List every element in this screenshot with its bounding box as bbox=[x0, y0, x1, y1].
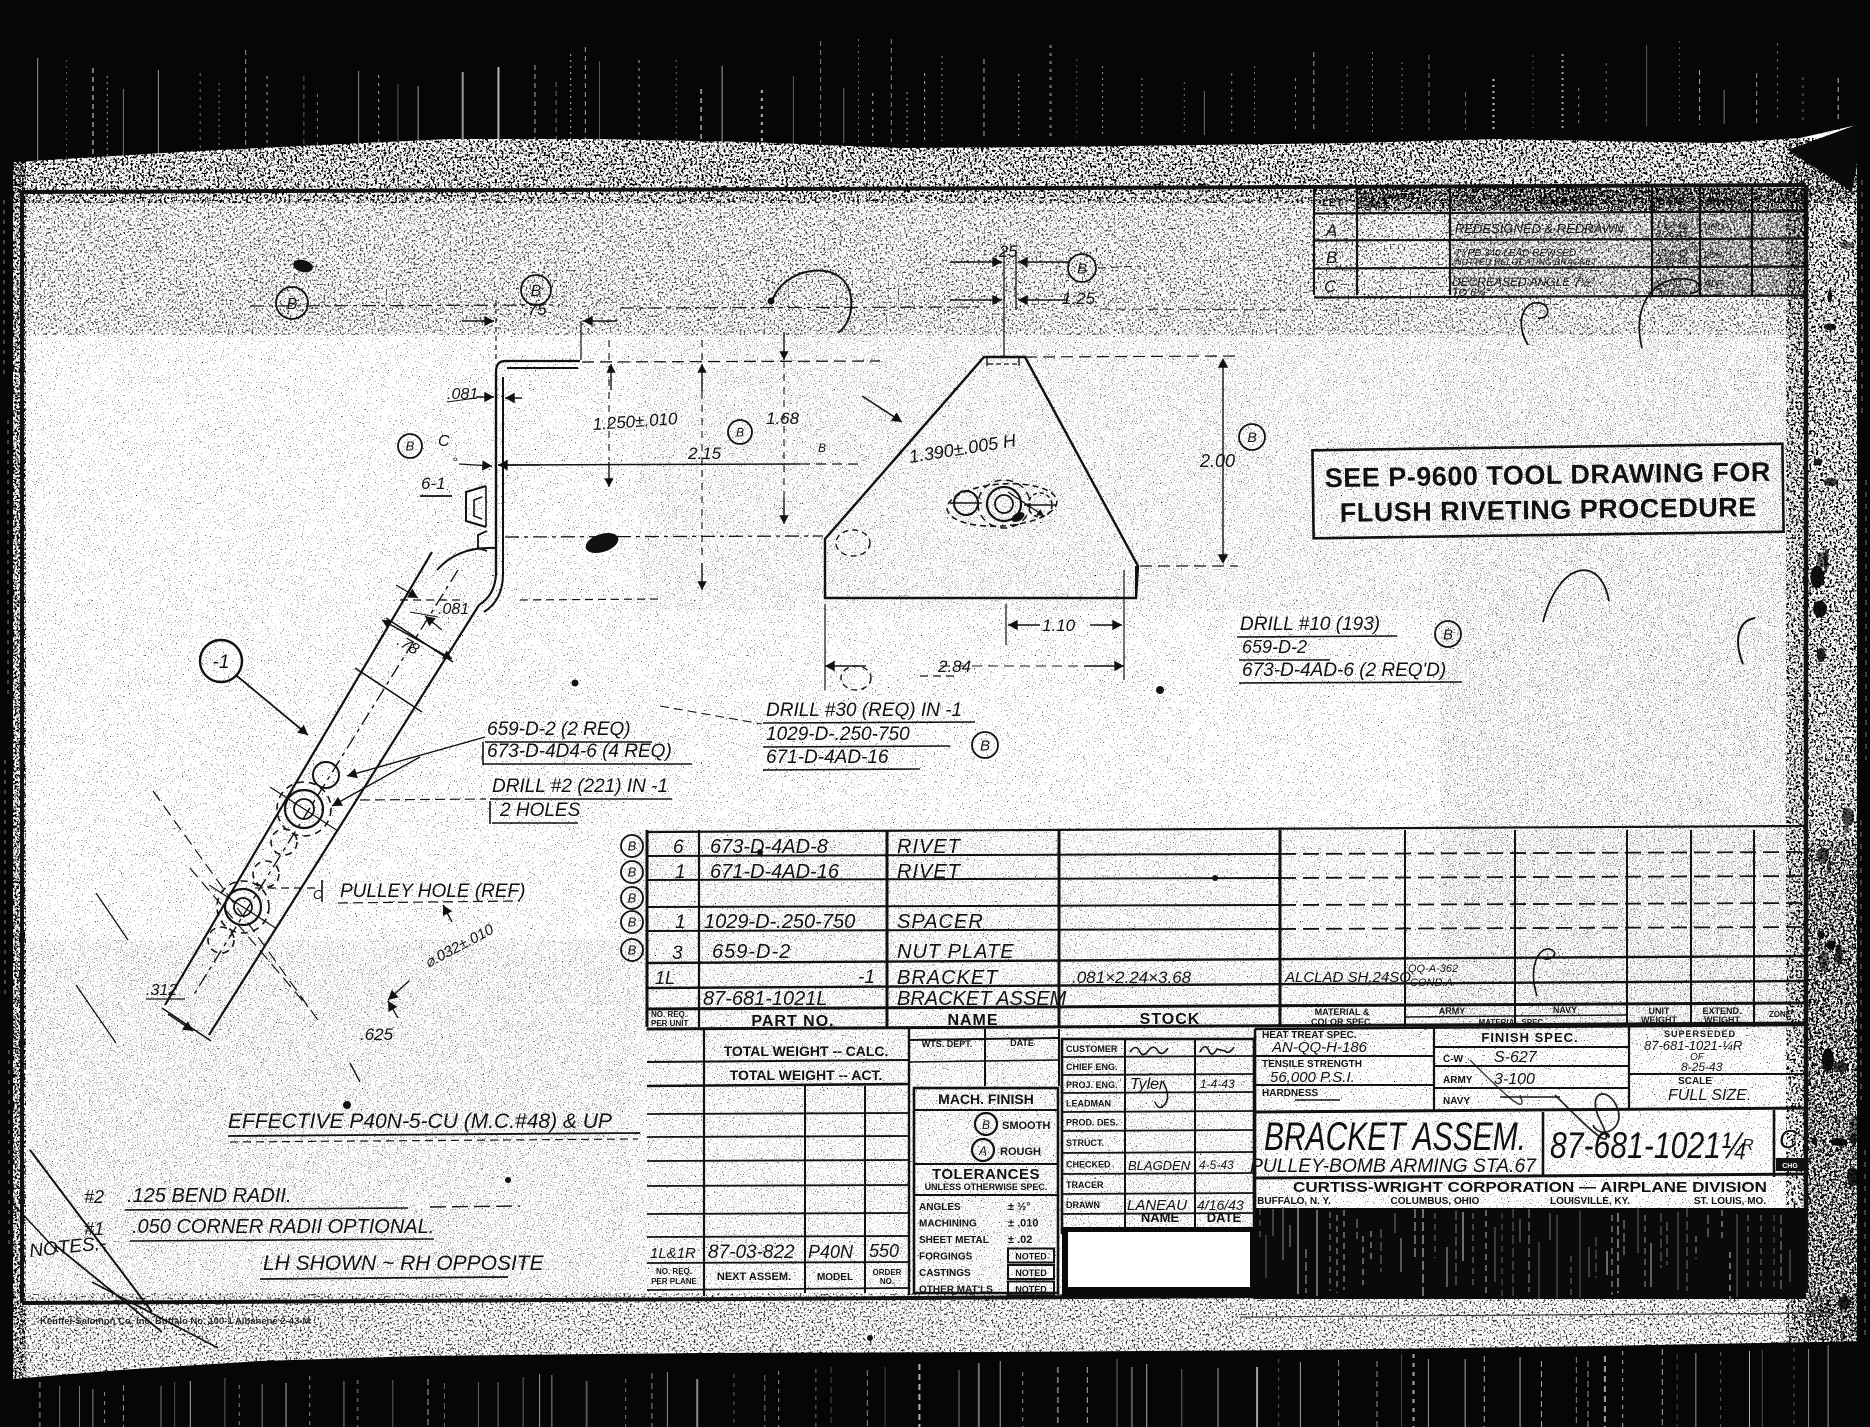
svg-text:B: B bbox=[1326, 248, 1337, 267]
svg-text:WTS. DEPT.: WTS. DEPT. bbox=[922, 1039, 973, 1049]
svg-text:.125 BEND RADII.: .125 BEND RADII. bbox=[127, 1185, 292, 1207]
svg-text:673-D-4AD-8: 673-D-4AD-8 bbox=[710, 836, 828, 858]
svg-text:NEXT ASSEM.: NEXT ASSEM. bbox=[717, 1271, 791, 1283]
svg-text:MACHINING: MACHINING bbox=[919, 1219, 977, 1230]
svg-text:COLOR SPEC.: COLOR SPEC. bbox=[1311, 1017, 1373, 1027]
svg-text:LEADMAN: LEADMAN bbox=[1066, 1099, 1111, 1109]
svg-text:CURTISS-WRIGHT CORPORATION —: CURTISS-WRIGHT CORPORATION — AIRPLANE DI… bbox=[1293, 1179, 1767, 1196]
svg-text:1-4-43: 1-4-43 bbox=[1200, 1077, 1235, 1091]
svg-text:B: B bbox=[1077, 260, 1087, 277]
svg-text:OTHER MAT'LS: OTHER MAT'LS bbox=[919, 1285, 993, 1296]
svg-text:NUT PLATE: NUT PLATE bbox=[897, 941, 1015, 963]
svg-text:BUFFALO, N. Y.: BUFFALO, N. Y. bbox=[1257, 1196, 1331, 1207]
svg-text:ANGLES: ANGLES bbox=[919, 1202, 961, 1213]
svg-text:NOTED: NOTED bbox=[1015, 1252, 1047, 1262]
svg-text:87-681-1021¼: 87-681-1021¼ bbox=[1550, 1125, 1746, 1166]
svg-text:NO. REQ.: NO. REQ. bbox=[651, 1010, 687, 1019]
svg-text:C: C bbox=[1779, 1124, 1798, 1154]
svg-text:CUSTOMER: CUSTOMER bbox=[1066, 1044, 1118, 1054]
svg-text:673-D-4AD-6 (2 REQ'D): 673-D-4AD-6 (2 REQ'D) bbox=[1242, 660, 1446, 681]
svg-text:TOLERANCES: TOLERANCES bbox=[932, 1166, 1040, 1183]
svg-text:R: R bbox=[1742, 1137, 1754, 1154]
svg-text:2.00: 2.00 bbox=[1199, 451, 1235, 471]
svg-text:LANEAU: LANEAU bbox=[1127, 1197, 1187, 1214]
svg-text:3: 3 bbox=[672, 943, 683, 964]
svg-text:± ½°: ± ½° bbox=[1008, 1201, 1031, 1213]
svg-text:C: C bbox=[313, 887, 323, 902]
svg-text:1.10: 1.10 bbox=[1042, 616, 1076, 635]
svg-text:NOTED: NOTED bbox=[1015, 1285, 1047, 1295]
svg-text:TOTAL WEIGHT -- CALC.: TOTAL WEIGHT -- CALC. bbox=[724, 1043, 889, 1059]
svg-text:87-681-1021L: 87-681-1021L bbox=[703, 988, 828, 1010]
svg-text:B: B bbox=[736, 425, 744, 439]
svg-text:CHECKED: CHECKED bbox=[1066, 1160, 1111, 1170]
svg-text:FLUSH RIVETING PROCEDURE: FLUSH RIVETING PROCEDURE bbox=[1340, 492, 1757, 528]
svg-text:STOCK: STOCK bbox=[1140, 1011, 1201, 1028]
svg-text:RIVET: RIVET bbox=[897, 861, 962, 883]
svg-text:± .02: ± .02 bbox=[1008, 1234, 1032, 1246]
svg-text:S-627: S-627 bbox=[1494, 1049, 1538, 1066]
svg-text:1.25: 1.25 bbox=[1062, 289, 1096, 308]
svg-text:Tyler: Tyler bbox=[1130, 1076, 1165, 1093]
svg-text:BRACKET ASSEM: BRACKET ASSEM bbox=[897, 988, 1067, 1010]
svg-text:NO. REQ.: NO. REQ. bbox=[656, 1267, 692, 1276]
svg-text:#2: #2 bbox=[84, 1187, 104, 1207]
svg-text:B: B bbox=[531, 283, 542, 300]
svg-text:6-1: 6-1 bbox=[421, 474, 446, 493]
svg-text:B: B bbox=[982, 1118, 990, 1132]
svg-text:C-W: C-W bbox=[1443, 1054, 1464, 1065]
svg-text:DRILL #30 (REQ) IN -1: DRILL #30 (REQ) IN -1 bbox=[766, 700, 962, 721]
svg-text:DRILL #10 (193): DRILL #10 (193) bbox=[1240, 614, 1380, 635]
svg-text:ARMY: ARMY bbox=[1439, 1006, 1466, 1016]
svg-text:659-D-2: 659-D-2 bbox=[1242, 637, 1307, 657]
svg-text:FINISH SPEC.: FINISH SPEC. bbox=[1481, 1030, 1578, 1045]
svg-text:STRUCT.: STRUCT. bbox=[1066, 1138, 1104, 1148]
svg-text:671-D-4AD-16: 671-D-4AD-16 bbox=[710, 861, 840, 883]
svg-text:B: B bbox=[628, 839, 637, 854]
svg-text:8-25-43: 8-25-43 bbox=[1681, 1060, 1723, 1074]
svg-text:673-D-4D4-6 (4 REQ): 673-D-4D4-6 (4 REQ) bbox=[487, 741, 672, 762]
svg-text:P40N: P40N bbox=[808, 1242, 854, 1262]
svg-text:MODEL: MODEL bbox=[817, 1272, 853, 1283]
svg-text:B: B bbox=[628, 865, 637, 880]
svg-text:ORDER: ORDER bbox=[873, 1268, 902, 1277]
svg-text:°: ° bbox=[452, 454, 458, 470]
svg-text:CASTINGS: CASTINGS bbox=[919, 1268, 971, 1279]
svg-text:DRILL #2 (221) IN -1: DRILL #2 (221) IN -1 bbox=[492, 776, 668, 797]
svg-text:4/16/43: 4/16/43 bbox=[1197, 1197, 1244, 1213]
svg-text:ALCLAD SH.24SO: ALCLAD SH.24SO bbox=[1284, 969, 1411, 986]
svg-text:-1: -1 bbox=[858, 967, 875, 988]
svg-text:B: B bbox=[818, 441, 826, 455]
svg-text:ROUGH: ROUGH bbox=[1000, 1146, 1041, 1158]
svg-text:PER UNIT: PER UNIT bbox=[651, 1019, 688, 1028]
svg-text:ST. LOUIS, MO.: ST. LOUIS, MO. bbox=[1694, 1196, 1766, 1207]
svg-text:WEIGHT: WEIGHT bbox=[1704, 1015, 1740, 1025]
svg-text:.25: .25 bbox=[994, 242, 1018, 261]
svg-text:671-D-4AD-16: 671-D-4AD-16 bbox=[766, 747, 889, 768]
svg-text:PULLEY-BOMB ARMING STA.67: PULLEY-BOMB ARMING STA.67 bbox=[1250, 1156, 1537, 1177]
svg-text:SHEET METAL: SHEET METAL bbox=[919, 1235, 989, 1246]
svg-text:PULLEY HOLE (REF): PULLEY HOLE (REF) bbox=[340, 881, 525, 902]
svg-text:EFFECTIVE P40N-5-CU (M.C.#48): EFFECTIVE P40N-5-CU (M.C.#48) & UP bbox=[228, 1110, 612, 1133]
svg-text:PROD. DES.: PROD. DES. bbox=[1066, 1118, 1118, 1128]
svg-text:2.15: 2.15 bbox=[687, 444, 722, 463]
svg-text:B: B bbox=[406, 439, 415, 454]
svg-text:1: 1 bbox=[675, 862, 686, 883]
svg-text:3-100: 3-100 bbox=[1494, 1071, 1535, 1088]
svg-text:NAVY: NAVY bbox=[1443, 1096, 1470, 1107]
svg-text:BRACKET: BRACKET bbox=[897, 967, 999, 989]
svg-text:COND.A: COND.A bbox=[1410, 977, 1453, 989]
svg-text:LOUISVILLE, KY.: LOUISVILLE, KY. bbox=[1550, 1196, 1630, 1207]
svg-text:TRACER: TRACER bbox=[1066, 1180, 1104, 1190]
svg-text:.081: .081 bbox=[438, 601, 469, 618]
svg-text:B: B bbox=[1443, 626, 1453, 643]
svg-text:LH SHOWN ~ RH OPPOSITE: LH SHOWN ~ RH OPPOSITE bbox=[263, 1252, 545, 1275]
svg-text:HARDNESS: HARDNESS bbox=[1262, 1088, 1318, 1099]
svg-text:BRACKET ASSEM.: BRACKET ASSEM. bbox=[1264, 1115, 1526, 1159]
svg-text:659-D-2 (2 REQ): 659-D-2 (2 REQ) bbox=[487, 719, 631, 740]
svg-text:A: A bbox=[1325, 221, 1337, 240]
svg-text:AN-QQ-H-186: AN-QQ-H-186 bbox=[1271, 1039, 1368, 1056]
svg-text:B: B bbox=[1247, 429, 1256, 445]
svg-text:.625: .625 bbox=[360, 1025, 394, 1044]
svg-text:NOTED: NOTED bbox=[1015, 1268, 1047, 1278]
svg-text:2 HOLES: 2 HOLES bbox=[499, 800, 581, 821]
svg-text:1L: 1L bbox=[655, 968, 675, 988]
svg-text:BLAGDEN: BLAGDEN bbox=[1128, 1158, 1191, 1173]
svg-text:RIVET: RIVET bbox=[897, 836, 962, 858]
svg-text:.312: .312 bbox=[146, 982, 177, 999]
svg-text:COLUMBUS, OHIO: COLUMBUS, OHIO bbox=[1391, 1196, 1480, 1207]
svg-text:NO.: NO. bbox=[880, 1277, 894, 1286]
svg-text:1029-D-.250-750: 1029-D-.250-750 bbox=[766, 724, 910, 745]
svg-text:UNLESS OTHERWISE SPEC.: UNLESS OTHERWISE SPEC. bbox=[925, 1182, 1048, 1192]
svg-text:87-681-1021-¼R: 87-681-1021-¼R bbox=[1644, 1038, 1742, 1053]
svg-text:C: C bbox=[1324, 277, 1337, 296]
svg-text:4-5-43: 4-5-43 bbox=[1199, 1158, 1234, 1172]
svg-text:NAVY: NAVY bbox=[1553, 1005, 1577, 1015]
svg-text:MATERIAL SPEC.: MATERIAL SPEC. bbox=[1479, 1018, 1546, 1027]
svg-text:PART NO.: PART NO. bbox=[751, 1013, 834, 1030]
svg-text:C: C bbox=[438, 433, 450, 450]
svg-text:A: A bbox=[978, 1144, 987, 1158]
svg-text:1: 1 bbox=[675, 912, 686, 933]
svg-text:B: B bbox=[628, 943, 637, 958]
svg-text:56,000 P.S.I.: 56,000 P.S.I. bbox=[1270, 1069, 1355, 1086]
svg-text:SMOOTH: SMOOTH bbox=[1002, 1120, 1050, 1132]
svg-text:B: B bbox=[628, 915, 637, 930]
svg-text:PROJ. ENG.: PROJ. ENG. bbox=[1066, 1080, 1118, 1090]
svg-text:FULL SIZE.: FULL SIZE. bbox=[1668, 1087, 1751, 1104]
svg-text:ZONE: ZONE bbox=[1769, 1010, 1792, 1019]
svg-text:1029-D-.250-750: 1029-D-.250-750 bbox=[704, 911, 855, 933]
svg-text:659-D-2: 659-D-2 bbox=[712, 941, 791, 963]
svg-text:QQ-A-362: QQ-A-362 bbox=[1408, 963, 1458, 975]
svg-text:SEE P-9600 TOOL DRAWING FOR: SEE P-9600 TOOL DRAWING FOR bbox=[1325, 457, 1771, 493]
svg-text:SCALE: SCALE bbox=[1678, 1076, 1712, 1087]
svg-text:.050 CORNER RADII OPTIONAL.: .050 CORNER RADII OPTIONAL. bbox=[132, 1216, 434, 1238]
svg-text:CHG: CHG bbox=[1782, 1163, 1798, 1170]
svg-text:B: B bbox=[628, 891, 637, 906]
svg-text:MACH. FINISH: MACH. FINISH bbox=[938, 1091, 1034, 1107]
svg-text:± .010: ± .010 bbox=[1008, 1218, 1039, 1230]
svg-text:.081: .081 bbox=[447, 386, 478, 403]
svg-text:1.68: 1.68 bbox=[766, 409, 800, 428]
svg-text:550: 550 bbox=[869, 1241, 899, 1261]
svg-text:FORGINGS: FORGINGS bbox=[919, 1252, 973, 1263]
svg-text:PER PLANE: PER PLANE bbox=[651, 1277, 697, 1286]
svg-text:WEIGHT: WEIGHT bbox=[1641, 1015, 1677, 1025]
svg-text:DRAWN: DRAWN bbox=[1066, 1200, 1100, 1210]
svg-text:B: B bbox=[287, 296, 298, 313]
svg-text:TOTAL WEIGHT -- ACT.: TOTAL WEIGHT -- ACT. bbox=[730, 1067, 883, 1083]
svg-text:ARMY: ARMY bbox=[1443, 1075, 1473, 1086]
svg-text:MATERIAL &: MATERIAL & bbox=[1315, 1007, 1370, 1017]
svg-text:Keuffel-Salomon Co. Inc. Buffa: Keuffel-Salomon Co. Inc. Buffalo No. 100… bbox=[40, 1316, 311, 1327]
svg-text:-1: -1 bbox=[213, 652, 230, 673]
svg-text:NAME: NAME bbox=[947, 1012, 998, 1029]
svg-text:DATE: DATE bbox=[1010, 1038, 1034, 1048]
svg-text:SPACER: SPACER bbox=[897, 911, 984, 933]
svg-text:87-03-822: 87-03-822 bbox=[708, 1242, 795, 1263]
svg-text:6: 6 bbox=[673, 837, 684, 858]
svg-text:.081×2.24×3.68: .081×2.24×3.68 bbox=[1072, 968, 1192, 987]
svg-text:1L&1R: 1L&1R bbox=[650, 1245, 696, 1262]
svg-text:CHIEF ENG.: CHIEF ENG. bbox=[1066, 1062, 1118, 1072]
svg-text:B: B bbox=[980, 737, 990, 754]
